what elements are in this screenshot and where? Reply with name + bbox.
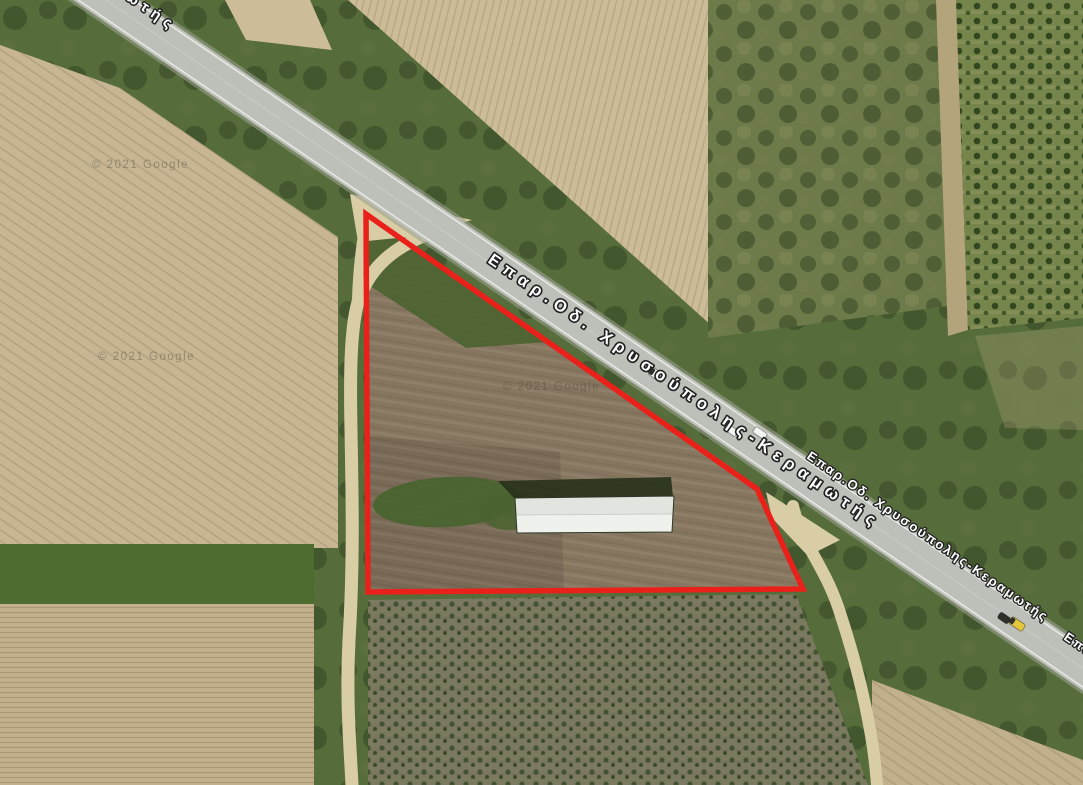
satellite-map-viewport[interactable]: Επαρ.Οδ. Χρυσούπολης-ΚεραμωτήςΕπαρ.Οδ. Χ… [0,0,1083,785]
field-orchard-texture [956,0,1083,330]
field-vineyard-texture [368,594,868,785]
google-watermark-2: © 2021 Google [98,351,195,363]
warehouse-roof-north-slope [515,496,674,515]
google-watermark-1: © 2021 Google [92,159,189,171]
field-fallow-green-texture [708,0,948,338]
field-bottom-left-texture [0,604,314,785]
hedgerow-strip [0,544,314,604]
google-watermark-3: © 2021 Google [503,381,600,393]
satellite-map[interactable]: Επαρ.Οδ. Χρυσούπολης-ΚεραμωτήςΕπαρ.Οδ. Χ… [0,0,1083,785]
